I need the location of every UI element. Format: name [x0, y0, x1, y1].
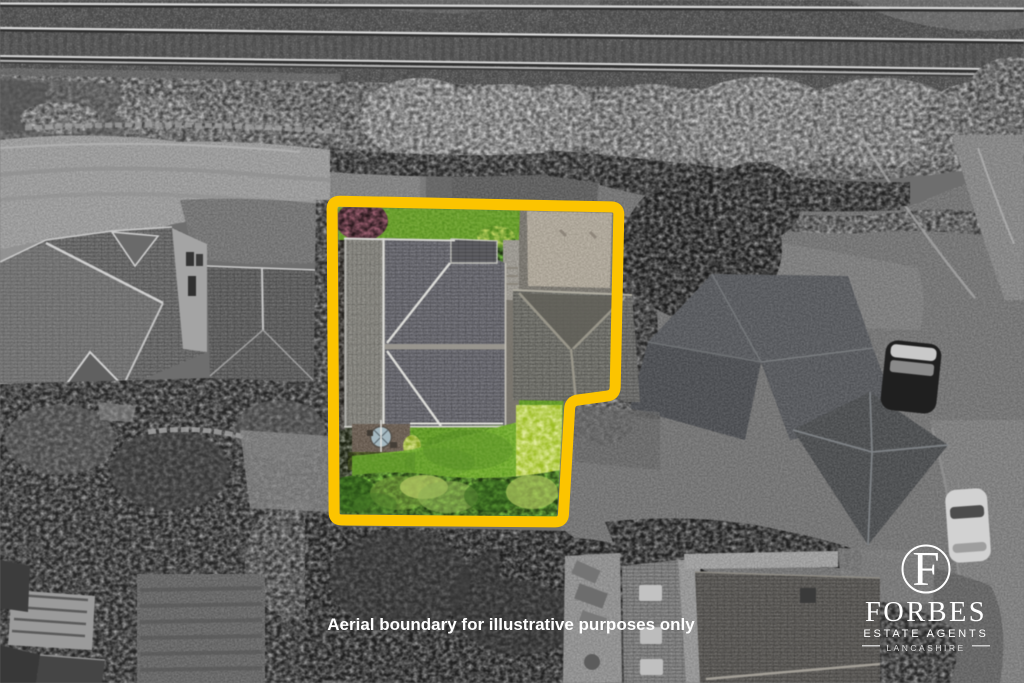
svg-text:F: F	[912, 541, 939, 596]
svg-text:ESTATE AGENTS: ESTATE AGENTS	[863, 628, 988, 640]
svg-text:FORBES: FORBES	[865, 597, 987, 628]
svg-text:LANCASHIRE: LANCASHIRE	[886, 643, 965, 653]
svg-text:Aerial boundary for illustrati: Aerial boundary for illustrative purpose…	[327, 615, 695, 634]
